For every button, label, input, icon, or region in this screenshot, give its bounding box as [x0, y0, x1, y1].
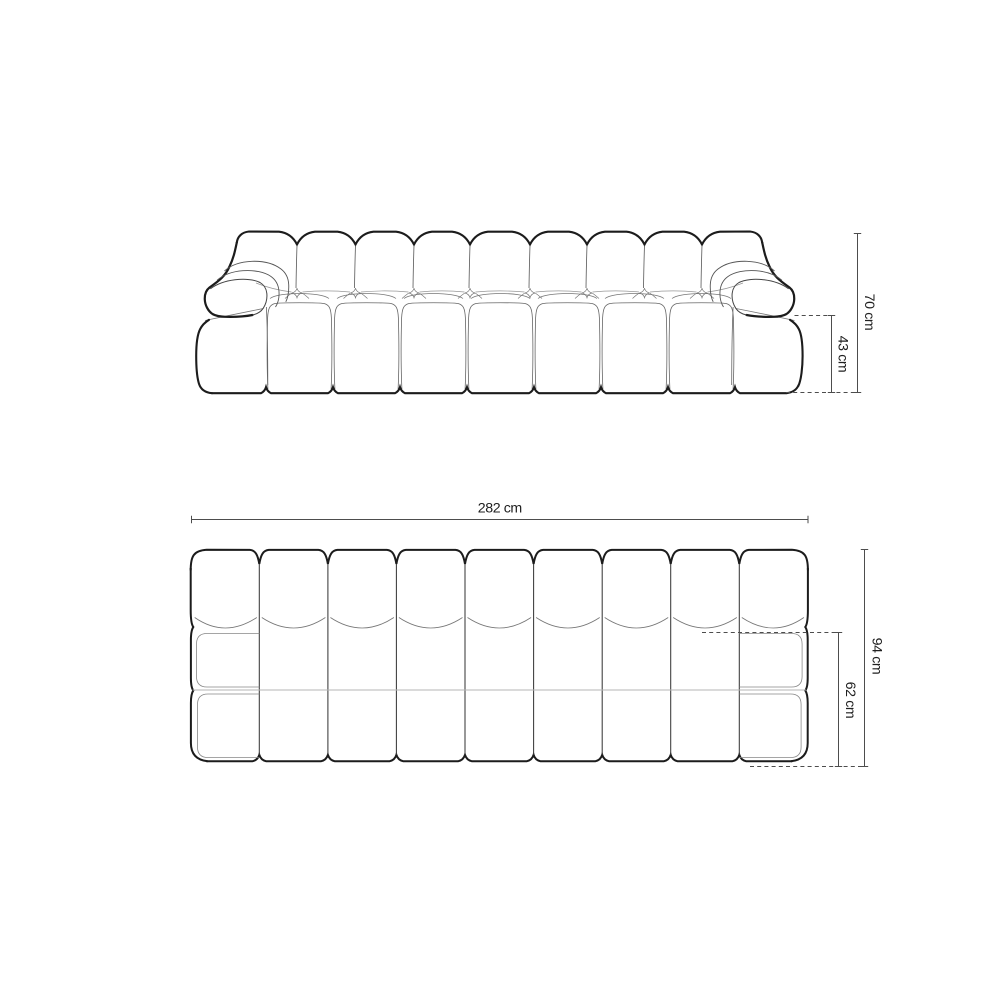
- svg-text:70 cm: 70 cm: [861, 294, 877, 331]
- svg-text:282 cm: 282 cm: [478, 501, 522, 517]
- svg-text:62 cm: 62 cm: [842, 682, 858, 719]
- svg-text:43 cm: 43 cm: [834, 336, 850, 373]
- svg-text:94 cm: 94 cm: [868, 638, 884, 675]
